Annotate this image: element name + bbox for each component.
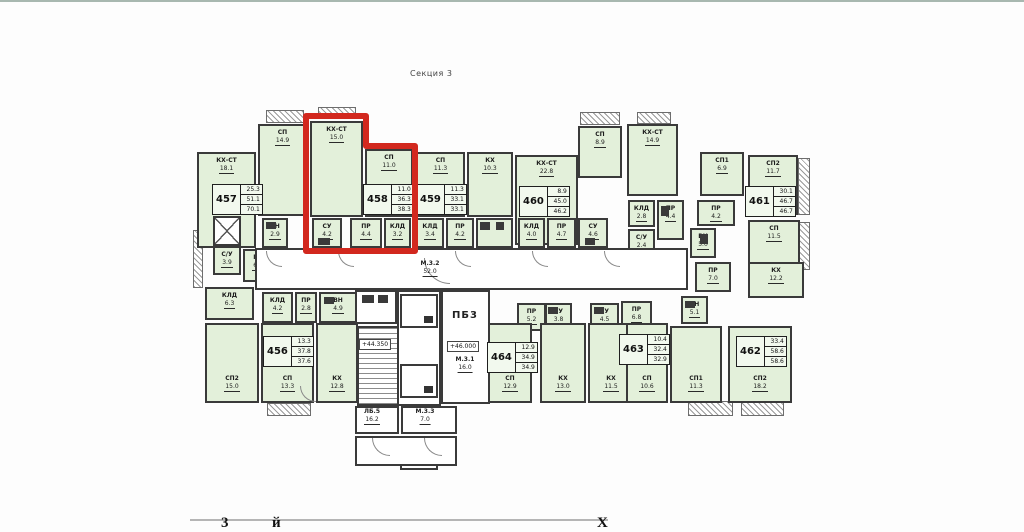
room-area: 4.9 [332, 305, 344, 314]
apartment-area-value: 58.6 [765, 357, 786, 366]
balcony [318, 107, 356, 119]
apartment-area-value: 36.3 [392, 195, 413, 205]
apartment-area-value: 25.3 [241, 185, 262, 195]
apartment-number: 456 [264, 337, 292, 366]
apartment-area-value: 32.4 [648, 345, 669, 355]
core-label: М.3.3 7.0 [416, 408, 435, 425]
apartment-label: 459 11.333.133.1 [416, 184, 467, 215]
room: С/У 3.9 [213, 246, 241, 275]
room-area: 10.3 [482, 165, 497, 174]
room-label: КЛД [390, 223, 405, 231]
room-label: КХ [558, 375, 568, 383]
apartment-label: 456 13.337.837.6 [263, 336, 314, 367]
apartment-label: 458 11.036.338.3 [363, 184, 414, 215]
apartment-areas: 11.333.133.1 [445, 185, 466, 214]
fixture [594, 307, 604, 314]
elevation-mark: +44.350 [359, 339, 391, 350]
room-label: СП [384, 154, 393, 162]
apartment-area-value: 8.9 [548, 187, 569, 197]
apartment-area-value: 33.1 [445, 205, 466, 214]
room-area: 11.0 [381, 162, 396, 171]
apartment-area-value: 45.0 [548, 197, 569, 207]
room-label: КЛД [524, 223, 539, 231]
core-label: ПБ3 [452, 312, 478, 320]
core-label-area: 16.2 [364, 416, 379, 425]
room-area: 11.3 [688, 383, 703, 392]
room: СП1 11.3 [670, 326, 722, 403]
room: КЛД 2.8 [628, 200, 655, 227]
room-label: С/У [221, 251, 232, 259]
room: СП2 15.0 [205, 323, 259, 403]
apartment-area-value: 51.1 [241, 195, 262, 205]
room-area: 8.9 [594, 139, 606, 148]
room: КЛД 4.2 [262, 292, 293, 323]
fixture [266, 222, 276, 229]
section-title: Секция 3 [410, 69, 452, 78]
room-label: КХ [771, 267, 781, 275]
apartment-area-value: 34.9 [516, 353, 537, 363]
room-label: КХ [606, 375, 616, 383]
apartment-area-value: 10.4 [648, 335, 669, 345]
apartment-area-value: 32.9 [648, 355, 669, 364]
fixture [548, 307, 558, 314]
room-label: СП [642, 375, 651, 383]
room: КЛД 3.2 [384, 218, 411, 248]
apartment-area-value: 11.0 [392, 185, 413, 195]
room: КХ 12.2 [748, 262, 804, 298]
apartment-label: 462 33.458.658.6 [736, 336, 787, 367]
room [400, 294, 438, 328]
apartment-label: 463 10.432.432.9 [619, 334, 670, 365]
room-label: СП [505, 375, 514, 383]
room-label: КХ-СТ [216, 157, 237, 165]
core-label-area: 7.0 [419, 416, 431, 425]
room-area: 4.2 [272, 305, 284, 314]
core-label-name: М.3.1 [456, 356, 475, 364]
apartment-area-value: 33.1 [445, 195, 466, 205]
room-label: СП [769, 225, 778, 233]
apartment-label: 461 30.146.746.7 [745, 186, 796, 217]
core-label: М.3.1 16.0 [456, 356, 475, 373]
core-label-area: 16.0 [457, 364, 472, 373]
apartment-area-value: 12.9 [516, 343, 537, 353]
room-label: СП [595, 131, 604, 139]
room-area: 11.7 [765, 168, 780, 177]
apartment-number: 457 [213, 185, 241, 214]
room-label: ПР [455, 223, 464, 231]
apartment-area-value: 13.3 [292, 337, 313, 347]
apartment-areas: 25.351.170.1 [241, 185, 262, 214]
room-area: 18.1 [219, 165, 234, 174]
balcony [741, 401, 784, 416]
room-area: 14.9 [645, 137, 660, 146]
fixture [318, 238, 330, 245]
apartment-area-value: 33.4 [765, 337, 786, 347]
core-label-name: М.3.2 [421, 260, 440, 268]
room-label: СП2 [766, 160, 780, 168]
room-label: КХ [332, 375, 342, 383]
balcony [637, 112, 671, 124]
floor-plan: Секция 3 КХ-СТ 18.1 СП 14.9 КХ-СТ 15.0 С… [0, 0, 1024, 522]
cutoff-caption-fragment: й [272, 515, 281, 532]
room-label: СУ [322, 223, 331, 231]
balcony [266, 110, 304, 123]
fixture [324, 297, 334, 304]
room-area: 7.0 [707, 275, 719, 284]
room-label: КЛД [222, 292, 237, 300]
balcony [798, 158, 810, 215]
apartment-label: 464 12.934.934.9 [487, 342, 538, 373]
room-label: ПР [301, 297, 310, 305]
room-label: КХ-СТ [536, 160, 557, 168]
room: КЛД 6.3 [205, 287, 254, 320]
room-label: КЛД [634, 205, 649, 213]
room-area: 15.0 [329, 134, 344, 143]
room: ПР 4.4 [350, 218, 382, 248]
apartment-areas: 33.458.658.6 [765, 337, 786, 366]
cutoff-caption-fragment: 3 [221, 515, 229, 532]
room-label: КХ [485, 157, 495, 165]
core-label-area: 52.0 [422, 268, 437, 277]
fixture [378, 295, 388, 303]
apartment-number: 461 [746, 187, 774, 216]
room-area: 13.0 [555, 383, 570, 392]
core-label-name: ПБ3 [452, 312, 478, 320]
room-area: 11.3 [433, 165, 448, 174]
apartment-areas: 30.146.746.7 [774, 187, 795, 216]
apartment-areas: 8.945.046.2 [548, 187, 569, 216]
fixture [362, 295, 374, 303]
room [400, 364, 438, 398]
cutoff-caption-fragment: Х [597, 515, 608, 532]
room-area: 4.0 [526, 231, 538, 240]
room-area: 22.8 [539, 168, 554, 177]
room [255, 248, 688, 290]
room: КХ 12.8 [316, 323, 358, 403]
room-label: ПР [361, 223, 370, 231]
apartment-area-value: 11.3 [445, 185, 466, 195]
room-area: 18.2 [752, 383, 767, 392]
room: КХ 13.0 [540, 323, 586, 403]
apartment-number: 464 [488, 343, 516, 372]
room: ПР 4.2 [446, 218, 474, 248]
room-area: 12.9 [502, 383, 517, 392]
apartment-area-value: 38.3 [392, 205, 413, 214]
room-label: ПР [711, 205, 720, 213]
room-label: СП [278, 129, 287, 137]
apartment-area-value: 70.1 [241, 205, 262, 214]
room: СП 14.9 [258, 124, 307, 216]
room-label: ПР [708, 267, 717, 275]
room-label: КХ-СТ [326, 126, 347, 134]
room-label: ПР [557, 223, 566, 231]
apartment-number: 458 [364, 185, 392, 214]
apartment-area-value: 30.1 [774, 187, 795, 197]
room-label: СП2 [753, 375, 767, 383]
room [357, 326, 399, 406]
apartment-area-value: 58.6 [765, 347, 786, 357]
balcony [580, 112, 620, 125]
room-area: 3.9 [221, 259, 233, 268]
room-label: С/У [636, 234, 647, 242]
apartment-area-value: 37.6 [292, 357, 313, 366]
fixture [661, 206, 669, 216]
room-label: КЛД [270, 297, 285, 305]
room-area: 2.8 [636, 213, 648, 222]
room-label: СП [436, 157, 445, 165]
room: ПР 2.8 [295, 292, 317, 323]
room-area: 6.8 [631, 314, 643, 323]
room-label: СП1 [689, 375, 703, 383]
room: КХ-СТ 14.9 [627, 124, 678, 196]
apartment-number: 460 [520, 187, 548, 216]
room-label: КЛД [422, 223, 437, 231]
room-label: ПР [632, 306, 641, 314]
core-label: ЛБ.5 16.2 [364, 408, 380, 425]
room: СП1 6.9 [700, 152, 744, 196]
room: КХ 10.3 [467, 152, 513, 217]
fixture [480, 222, 490, 230]
room-label: СП2 [225, 375, 239, 383]
room-label: СП1 [715, 157, 729, 165]
fixture [585, 238, 595, 245]
room-area: 11.5 [603, 383, 618, 392]
room-area: 6.9 [716, 165, 728, 174]
bottom-rule-artifact [190, 519, 608, 521]
apartment-number: 459 [417, 185, 445, 214]
room-area: 3.2 [392, 231, 404, 240]
fixture [496, 222, 504, 230]
apartment-area-value: 34.9 [516, 363, 537, 372]
fixture [700, 234, 708, 244]
apartment-areas: 12.934.934.9 [516, 343, 537, 372]
room-area: 2.8 [300, 305, 312, 314]
room-label: ПР [527, 308, 536, 316]
top-edge-artifact [0, 0, 1024, 2]
core-label-name: ЛБ.5 [364, 408, 380, 416]
room-area: 12.8 [329, 383, 344, 392]
room-label: СП [283, 375, 292, 383]
apartment-label: 457 25.351.170.1 [212, 184, 263, 215]
room [213, 216, 241, 246]
room-area: 10.6 [639, 383, 654, 392]
elevation-mark: +46.000 [447, 341, 479, 352]
room-label: КХ-СТ [642, 129, 663, 137]
room-area: 13.3 [280, 383, 295, 392]
room: СП 8.9 [578, 126, 622, 178]
apartment-number: 463 [620, 335, 648, 364]
room-label: ВН [333, 297, 343, 305]
fixture [685, 301, 695, 308]
room-area: 4.4 [360, 231, 372, 240]
apartment-label: 460 8.945.046.2 [519, 186, 570, 217]
apartment-area-value: 46.7 [774, 197, 795, 207]
room-area: 15.0 [224, 383, 239, 392]
apartment-area-value: 46.2 [548, 207, 569, 216]
room-area: 4.2 [710, 213, 722, 222]
core-label: М.3.2 52.0 [421, 260, 440, 277]
apartment-number: 462 [737, 337, 765, 366]
room: ПР 4.7 [547, 218, 576, 248]
apartment-area-value: 46.7 [774, 207, 795, 216]
core-label-name: М.3.3 [416, 408, 435, 416]
room-area: 6.3 [224, 300, 236, 309]
room-area: 11.5 [766, 233, 781, 242]
balcony [688, 401, 733, 416]
room-area: 2.9 [269, 231, 281, 240]
room: КЛД 4.0 [518, 218, 545, 248]
room: КХ-СТ 15.0 [310, 121, 363, 217]
room: ПР 4.2 [697, 200, 735, 226]
room: КЛД 3.4 [416, 218, 444, 248]
apartment-areas: 13.337.837.6 [292, 337, 313, 366]
room-area: 5.1 [689, 309, 701, 318]
room-area: 12.2 [768, 275, 783, 284]
apartment-area-value: 37.8 [292, 347, 313, 357]
apartment-areas: 10.432.432.9 [648, 335, 669, 364]
room: ПР 7.0 [695, 262, 731, 292]
room-area: 14.9 [275, 137, 290, 146]
room-area: 3.4 [424, 231, 436, 240]
room-area: 4.7 [556, 231, 568, 240]
room-area: 4.2 [454, 231, 466, 240]
apartment-areas: 11.036.338.3 [392, 185, 413, 214]
room-label: СУ [588, 223, 597, 231]
balcony [267, 403, 311, 416]
